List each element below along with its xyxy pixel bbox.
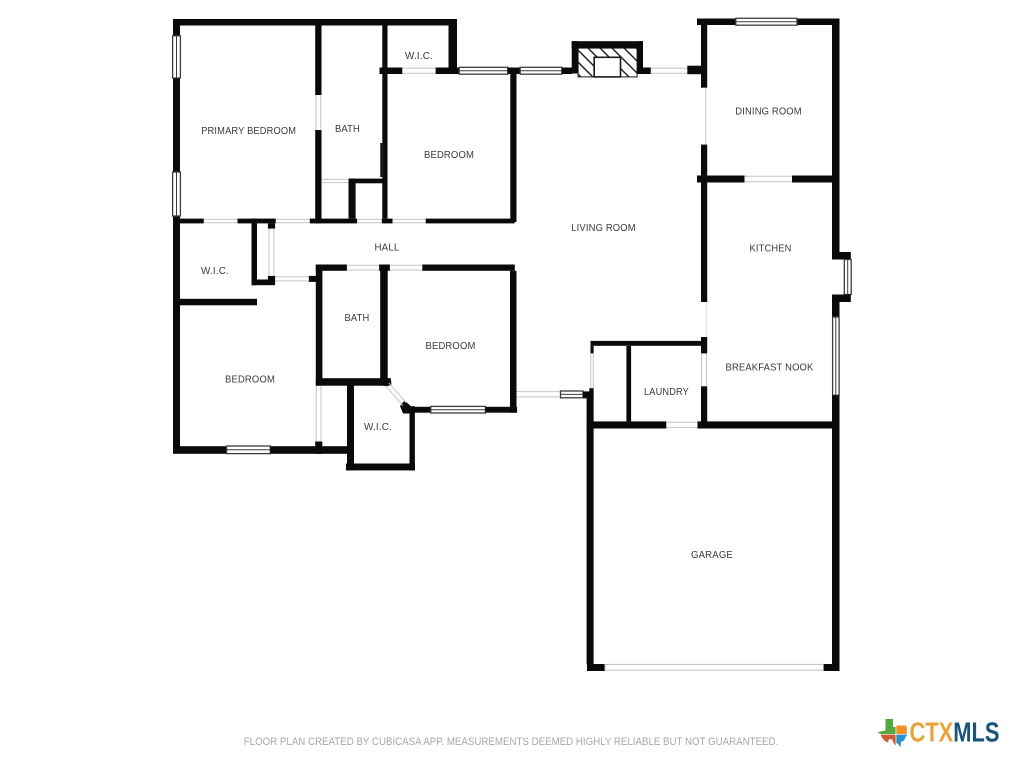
- svg-text:FLOOR PLAN CREATED BY CUBICASA: FLOOR PLAN CREATED BY CUBICASA APP. MEAS…: [244, 736, 779, 748]
- svg-text:BATH: BATH: [335, 124, 360, 135]
- svg-text:W.I.C.: W.I.C.: [405, 51, 433, 62]
- svg-text:W.I.C.: W.I.C.: [201, 266, 229, 277]
- svg-text:GARAGE: GARAGE: [691, 550, 733, 561]
- svg-text:BEDROOM: BEDROOM: [424, 150, 474, 161]
- svg-text:LIVING ROOM: LIVING ROOM: [571, 223, 636, 234]
- svg-text:PRIMARY BEDROOM: PRIMARY BEDROOM: [201, 126, 296, 137]
- svg-text:BREAKFAST NOOK: BREAKFAST NOOK: [726, 363, 814, 374]
- svg-text:W.I.C.: W.I.C.: [364, 422, 392, 433]
- svg-text:DINING ROOM: DINING ROOM: [735, 107, 802, 118]
- svg-text:LAUNDRY: LAUNDRY: [644, 387, 689, 398]
- svg-text:HALL: HALL: [375, 243, 400, 254]
- svg-text:BEDROOM: BEDROOM: [426, 341, 476, 352]
- svg-text:BATH: BATH: [345, 313, 370, 324]
- svg-text:CTXMLS: CTXMLS: [910, 717, 1000, 748]
- svg-text:KITCHEN: KITCHEN: [750, 244, 792, 255]
- svg-text:BEDROOM: BEDROOM: [225, 375, 275, 386]
